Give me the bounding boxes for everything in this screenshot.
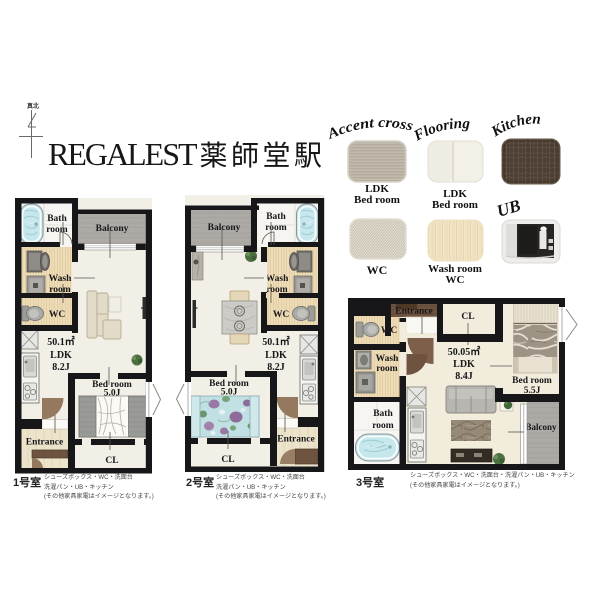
svg-text:CL: CL xyxy=(461,312,474,322)
svg-text:Balcony: Balcony xyxy=(525,422,557,432)
svg-text:Bath: Bath xyxy=(373,409,393,419)
svg-text:Bed room: Bed room xyxy=(512,376,552,386)
svg-text:8.4J: 8.4J xyxy=(455,371,473,382)
svg-text:50.05㎡: 50.05㎡ xyxy=(448,345,481,358)
svg-text:room: room xyxy=(376,364,398,374)
svg-text:Wash: Wash xyxy=(376,354,399,364)
svg-text:LDK: LDK xyxy=(453,359,475,370)
svg-text:room: room xyxy=(372,421,394,431)
svg-text:Entrance: Entrance xyxy=(395,307,432,317)
